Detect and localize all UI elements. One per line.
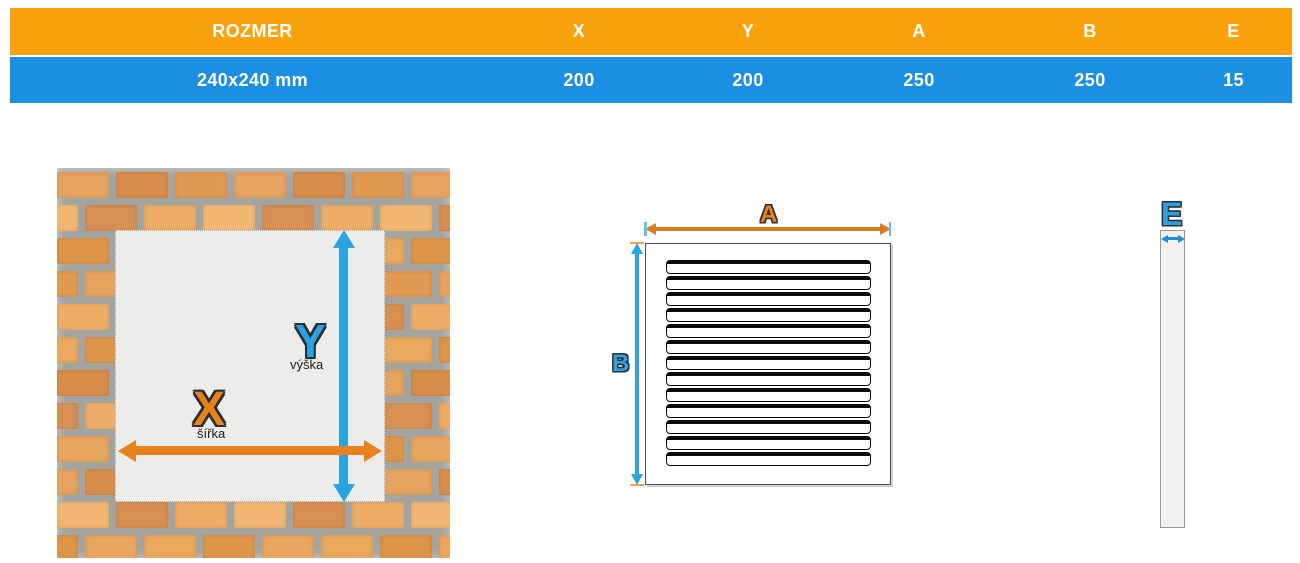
- brick: [144, 535, 196, 558]
- brick: [380, 271, 432, 297]
- brick: [57, 535, 78, 558]
- column-header-a: A: [833, 8, 1005, 55]
- brick: [411, 502, 450, 528]
- brick: [439, 403, 450, 429]
- grille-front-view: [645, 243, 891, 485]
- brick: [175, 502, 227, 528]
- brick: [116, 172, 168, 198]
- brick: [411, 304, 450, 330]
- x-dimension-sublabel: šířka: [197, 426, 225, 441]
- brick: [380, 469, 432, 495]
- b-extension-tick-top: [630, 242, 644, 245]
- brick: [321, 205, 373, 231]
- a-arrow-head-left: [645, 223, 656, 235]
- cell-rozmer: 240x240 mm: [10, 57, 495, 103]
- brick-wall-diagram: Y výška X šířka: [57, 168, 450, 558]
- brick: [57, 337, 78, 363]
- x-arrow-head-right: [364, 440, 382, 462]
- louver-slat: [666, 292, 871, 306]
- louver-slat: [666, 404, 871, 418]
- brick: [380, 205, 432, 231]
- b-extension-tick-bottom: [630, 484, 644, 487]
- brick: [144, 205, 196, 231]
- brick: [57, 403, 78, 429]
- column-header-x: X: [495, 8, 663, 55]
- cell-e: 15: [1175, 57, 1292, 103]
- brick: [352, 172, 404, 198]
- louver-slat: [666, 260, 871, 274]
- cell-a: 250: [833, 57, 1005, 103]
- brick: [411, 436, 450, 462]
- brick: [57, 469, 78, 495]
- brick: [293, 502, 345, 528]
- x-arrow-head-left: [118, 440, 136, 462]
- brick: [411, 238, 450, 264]
- brick: [439, 469, 450, 495]
- column-header-rozmer: ROZMER: [10, 8, 495, 55]
- cell-x: 200: [495, 57, 663, 103]
- brick: [380, 403, 432, 429]
- x-arrow-shaft: [136, 446, 364, 455]
- brick: [411, 370, 450, 396]
- cell-b: 250: [1005, 57, 1175, 103]
- louver-slat: [666, 356, 871, 370]
- louver-slat: [666, 324, 871, 338]
- brick: [85, 535, 137, 558]
- brick: [439, 205, 450, 231]
- brick: [85, 205, 137, 231]
- brick: [352, 502, 404, 528]
- brick: [175, 172, 227, 198]
- y-dimension-sublabel: výška: [290, 357, 323, 372]
- brick: [57, 502, 109, 528]
- a-dimension-letter: A: [760, 203, 777, 227]
- brick: [380, 535, 432, 558]
- column-header-b: B: [1005, 8, 1175, 55]
- brick: [57, 238, 109, 264]
- a-extension-tick-right: [889, 222, 892, 236]
- table-header-row: ROZMER X Y A B E: [10, 8, 1292, 55]
- column-header-y: Y: [663, 8, 833, 55]
- e-arrow-head-right: [1178, 235, 1185, 243]
- louver-slat: [666, 388, 871, 402]
- louver-slat: [666, 436, 871, 450]
- brick: [439, 337, 450, 363]
- e-dimension-letter: E: [1161, 198, 1182, 230]
- louver-slat: [666, 372, 871, 386]
- brick: [57, 271, 78, 297]
- grille-louvers: [666, 260, 871, 466]
- product-dimension-sheet: ROZMER X Y A B E 240x240 mm 200 200 250 …: [0, 0, 1300, 563]
- brick: [57, 436, 109, 462]
- brick: [439, 535, 450, 558]
- brick: [262, 535, 314, 558]
- brick: [380, 337, 432, 363]
- a-extension-tick-left: [644, 222, 647, 236]
- brick: [57, 172, 109, 198]
- e-arrow-head-left: [1161, 235, 1168, 243]
- a-arrow-shaft: [655, 227, 881, 231]
- column-header-e: E: [1175, 8, 1292, 55]
- louver-slat: [666, 420, 871, 434]
- b-dimension-letter: B: [612, 352, 629, 376]
- brick: [116, 502, 168, 528]
- brick: [57, 205, 78, 231]
- brick: [234, 502, 286, 528]
- louver-slat: [666, 308, 871, 322]
- brick: [234, 172, 286, 198]
- brick: [57, 370, 109, 396]
- cell-y: 200: [663, 57, 833, 103]
- brick: [321, 535, 373, 558]
- brick: [293, 172, 345, 198]
- y-arrow-head-bottom: [333, 484, 355, 502]
- louver-slat: [666, 452, 871, 466]
- brick: [411, 172, 450, 198]
- table-row: 240x240 mm 200 200 250 250 15: [10, 57, 1292, 103]
- y-arrow-head-top: [333, 230, 355, 248]
- dimension-table: ROZMER X Y A B E 240x240 mm 200 200 250 …: [10, 8, 1292, 103]
- louver-slat: [666, 276, 871, 290]
- brick: [203, 535, 255, 558]
- brick: [262, 205, 314, 231]
- b-arrow-head-top: [631, 243, 643, 254]
- brick: [57, 304, 109, 330]
- brick: [203, 205, 255, 231]
- brick: [439, 271, 450, 297]
- louver-slat: [666, 340, 871, 354]
- b-arrow-shaft: [635, 253, 639, 475]
- grille-side-profile: [1160, 230, 1185, 528]
